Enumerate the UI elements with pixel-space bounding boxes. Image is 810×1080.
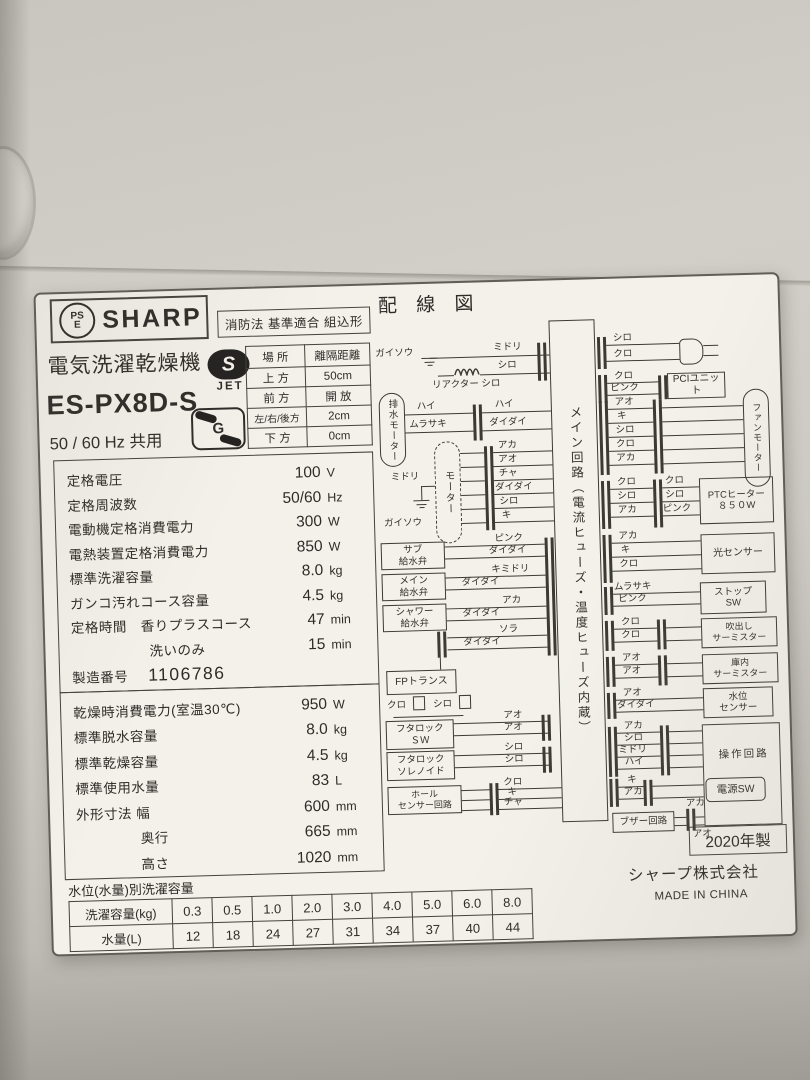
- spec-unit: kg: [323, 563, 365, 578]
- specs-block-1: 定格電圧100V 定格周波数50/60Hz 電動機定格消費電力300W 電熱装置…: [53, 451, 379, 693]
- motor-box: モーター: [434, 441, 463, 544]
- fp-stub: [413, 696, 425, 710]
- spec-name: 標準洗濯容量: [69, 566, 154, 588]
- spec-name: ガンコ汚れコース容量: [70, 589, 210, 613]
- spec-name: 定格時間 香りプラスコース: [71, 612, 253, 637]
- wire: [666, 639, 701, 641]
- main-valve-box: メイン 給水弁: [381, 572, 446, 601]
- left-edge-shadow: [0, 0, 30, 1080]
- capacity-value: 3.0: [332, 893, 373, 919]
- wire-label: ダイダイ: [462, 608, 500, 619]
- capacity-value: 0.5: [212, 896, 253, 922]
- wire-label: キ: [617, 411, 627, 421]
- wire-label: ダイダイ: [617, 700, 655, 711]
- spec-value: 4.5: [264, 747, 328, 767]
- wire-label: アオ: [693, 829, 712, 839]
- wire: [429, 354, 549, 358]
- wire: [669, 730, 702, 732]
- wire-label: クロ: [613, 349, 632, 359]
- wire: [454, 721, 550, 725]
- wire-label: シロ: [433, 699, 452, 709]
- reactor-coil-icon: [454, 365, 480, 376]
- spec-unit: kg: [328, 722, 370, 737]
- wire: [618, 768, 661, 770]
- wire-label: クロ: [617, 477, 636, 487]
- wire-label: アオ: [615, 397, 634, 407]
- amount-value: 31: [333, 918, 374, 944]
- water-amount-label: 水量(L): [70, 924, 174, 952]
- amount-value: 27: [293, 919, 334, 945]
- spec-unit: Hz: [321, 489, 363, 504]
- frequency: 50 / 60 Hz 共用: [49, 433, 162, 453]
- spec-unit: min: [325, 636, 367, 651]
- connector: [606, 657, 616, 687]
- wire-label: クロ: [621, 630, 640, 640]
- wire: [462, 522, 486, 524]
- clearance-distance: 50cm: [305, 365, 371, 387]
- g-letter: G: [212, 420, 224, 437]
- plug-prong: [703, 355, 718, 356]
- reactor-label: リアクター シロ: [432, 379, 501, 390]
- spec-unit: W: [327, 696, 369, 711]
- spec-unit: L: [329, 773, 371, 788]
- wire: [462, 799, 490, 801]
- wire-label: アカ: [686, 798, 705, 808]
- hall-sensor-box: ホール センサー回路: [387, 785, 462, 815]
- clearance-place: 前 方: [247, 387, 307, 409]
- g-mark-icon: G: [191, 407, 246, 450]
- spec-name: 標準乾燥容量: [74, 750, 159, 772]
- clearance-table: 場 所 離隔距離 上 方50cm 前 方開 放 左/右/後方2cm 下 方0cm: [245, 342, 373, 448]
- wire: [667, 675, 702, 677]
- wire-label: キ: [627, 775, 637, 785]
- bottom-shadow: [0, 950, 810, 1080]
- wire-label: アカ: [618, 505, 637, 515]
- wire-label: クロ: [614, 371, 633, 381]
- wire: [460, 466, 484, 468]
- clearance-place: 左/右/後方: [247, 407, 307, 429]
- wire: [393, 715, 463, 718]
- wire-label: ミドリ: [618, 745, 647, 755]
- wire-label: アカ: [498, 440, 517, 450]
- wire: [609, 464, 654, 466]
- plug-prong: [703, 345, 718, 346]
- wire: [670, 754, 703, 756]
- wire: [482, 428, 551, 431]
- connector: [686, 809, 696, 831]
- wire: [611, 516, 654, 518]
- wire: [461, 480, 485, 482]
- amount-value: 44: [492, 914, 533, 940]
- outlet-thermistor-box: 吹出し サーミスター: [701, 616, 778, 648]
- wire: [696, 824, 705, 825]
- clearance-place: 下 方: [248, 427, 308, 449]
- wire-label: アオ: [622, 653, 641, 663]
- wire-label: アオ: [503, 710, 522, 720]
- wire-label: ピンク: [610, 383, 639, 393]
- spec-name: 乾燥時消費電力(室温30℃): [73, 697, 241, 722]
- wire-label: クロ: [387, 701, 406, 711]
- wire-label: シロ: [505, 754, 524, 764]
- spec-value: 950: [263, 696, 327, 716]
- amount-value: 24: [253, 920, 294, 946]
- wire-label: アカ: [624, 721, 643, 731]
- wire-label: チャ: [499, 468, 518, 478]
- model-number: ES-PX8D-S: [46, 388, 198, 419]
- wire-label: ミドリ: [493, 342, 522, 352]
- spec-unit: W: [322, 538, 364, 553]
- wire: [462, 809, 490, 811]
- amount-value: 12: [173, 923, 214, 949]
- plug-icon: [679, 338, 704, 365]
- clearance-distance: 2cm: [306, 405, 372, 427]
- spec-value: 47: [260, 611, 324, 631]
- wire: [614, 641, 657, 643]
- power-sw-box: 電源SW: [705, 777, 766, 803]
- spec-value: 1020: [267, 849, 331, 869]
- amount-value: 18: [213, 921, 254, 947]
- connector: [657, 619, 667, 649]
- wire: [445, 556, 545, 560]
- ground-icon: [413, 500, 429, 510]
- wire: [405, 413, 473, 416]
- wire: [421, 486, 422, 500]
- ground-icon: [421, 358, 437, 368]
- spec-unit: kg: [328, 747, 370, 762]
- spec-value: 600: [266, 798, 330, 818]
- wire: [652, 784, 703, 786]
- wire-label: ピンク: [618, 594, 647, 604]
- wire-label: アカ: [502, 595, 521, 605]
- spec-name: 外形寸法 幅: [76, 802, 151, 824]
- spec-unit: mm: [331, 849, 373, 864]
- made-in: MADE IN CHINA: [654, 889, 748, 903]
- spec-value: 850: [258, 538, 322, 558]
- wire-label: アオ: [622, 666, 641, 676]
- fire-law-box: 消防法 基準適合 組込形: [217, 306, 371, 337]
- wire: [666, 626, 701, 628]
- spec-value: 8.0: [259, 562, 323, 582]
- clearance-row: 下 方0cm: [248, 425, 373, 448]
- wiring-title: 配 線 図: [378, 294, 481, 316]
- capacity-value: 4.0: [372, 892, 413, 918]
- connector: [597, 337, 607, 369]
- amount-value: 34: [373, 917, 414, 943]
- brand-name: SHARP: [102, 303, 203, 335]
- wire: [454, 733, 550, 737]
- connector: [537, 343, 547, 381]
- connector: [653, 399, 664, 473]
- connector: [660, 725, 670, 775]
- wire-label: アカ: [618, 531, 637, 541]
- connector: [541, 715, 551, 741]
- wire-label: キ: [502, 511, 512, 521]
- wire-label: シロ: [613, 333, 632, 343]
- wire: [615, 677, 658, 679]
- connector: [604, 587, 614, 615]
- connector: [605, 621, 615, 651]
- wire-label: クロ: [665, 476, 684, 486]
- capacity-value: 0.3: [172, 898, 213, 924]
- wire-label: アカ: [623, 787, 642, 797]
- wire-label: ダイダイ: [489, 545, 527, 556]
- pse-bottom: E: [74, 321, 81, 330]
- wire-label: ピンク: [494, 533, 523, 543]
- capacity-value: 6.0: [452, 890, 493, 916]
- wire-label: ダイダイ: [462, 577, 500, 588]
- wire-label: シロ: [617, 491, 636, 501]
- spec-value: 300: [258, 513, 322, 533]
- fan-motor-box: ファンモーター: [742, 388, 771, 487]
- wire-label: ハイ: [495, 399, 514, 409]
- amount-value: 40: [453, 915, 494, 941]
- clearance-distance: 0cm: [307, 425, 373, 447]
- capacity-value: 5.0: [412, 891, 453, 917]
- wire-label: シロ: [624, 733, 643, 743]
- wire-label: ムラサキ: [614, 582, 652, 593]
- ptc-heater-box: PTCヒーター ８５０W: [699, 476, 774, 524]
- clearance-place: 上 方: [246, 367, 306, 389]
- wire-label: シロ: [615, 425, 634, 435]
- connector: [437, 631, 447, 657]
- sub-valve-box: サブ 給水弁: [381, 541, 446, 570]
- drain-motor-box: 排水モーター: [378, 393, 406, 468]
- wire: [462, 508, 486, 510]
- fp-trans-box: FPトランス: [386, 669, 457, 695]
- wire-label: クロ: [621, 617, 640, 627]
- connector: [609, 779, 619, 807]
- water-table: 洗濯容量(kg) 0.3 0.5 1.0 2.0 3.0 4.0 5.0 6.0…: [68, 888, 533, 952]
- wire: [438, 375, 454, 376]
- connector: [607, 693, 617, 719]
- wire-label: アオ: [623, 688, 642, 698]
- spec-value: 665: [266, 823, 330, 843]
- wire: [405, 431, 473, 434]
- fp-stub: [459, 695, 471, 709]
- spec-name: 奥行: [76, 827, 169, 850]
- specs-block-2: 乾燥時消費電力(室温30℃)950W 標準脱水容量8.0kg 標準乾燥容量4.5…: [60, 683, 385, 880]
- pse-sharp-box: PS E SHARP: [50, 295, 209, 343]
- connector: [473, 404, 483, 440]
- wire-label: キ: [621, 545, 631, 555]
- clearance-distance: 開 放: [306, 385, 372, 407]
- wire: [669, 742, 702, 744]
- operation-circuit-box: [702, 722, 783, 826]
- spec-name: 標準脱水容量: [74, 725, 159, 747]
- wire-label: ダイダイ: [489, 417, 527, 428]
- wire-label: アカ: [616, 453, 635, 463]
- serial-number: 1106786: [148, 662, 226, 685]
- capacity-value: 8.0: [492, 889, 533, 915]
- wire: [662, 405, 743, 408]
- wire-label: シロ: [665, 490, 684, 500]
- clearance-col-place: 場 所: [246, 345, 306, 369]
- wire: [667, 662, 702, 664]
- wire: [608, 408, 653, 410]
- connector: [658, 655, 668, 685]
- clearance-col-distance: 離隔距離: [305, 343, 371, 367]
- wire-label: クロ: [619, 559, 638, 569]
- wire-label: ソラ: [499, 624, 518, 634]
- spec-unit: kg: [324, 587, 366, 602]
- lid-lock-solenoid-box: フタロック ソレノイド: [386, 750, 455, 781]
- wire-label: シロ: [499, 496, 518, 506]
- wire: [662, 419, 743, 422]
- wire: [619, 798, 644, 800]
- pse-mark-icon: PS E: [59, 302, 96, 339]
- ground-label: ガイソウ: [384, 518, 422, 529]
- water-capacity-label: 洗濯容量(kg): [69, 899, 173, 927]
- amount-value: 37: [413, 916, 454, 942]
- water-level-sensor-box: 水位 センサー: [703, 686, 774, 718]
- wire-label: シロ: [498, 360, 517, 370]
- spec-name: 高さ: [77, 852, 170, 875]
- wire: [663, 433, 744, 436]
- wire: [695, 816, 704, 817]
- wire: [482, 410, 551, 413]
- wire-label: シロ: [504, 742, 523, 752]
- light-sensor-box: 光センサー: [700, 532, 775, 574]
- wire-label: アオ: [504, 722, 523, 732]
- wire-label: ムラサキ: [409, 419, 447, 430]
- wire-label: ダイダイ: [463, 637, 501, 648]
- chamber-thermistor-box: 庫内 サーミスター: [702, 652, 779, 684]
- spec-name: 定格周波数: [67, 493, 138, 515]
- serial-label: 製造番号: [72, 665, 129, 687]
- water-table-title: 水位(水量)別洗濯容量: [68, 882, 194, 899]
- spec-unit: W: [322, 514, 364, 529]
- wire: [421, 486, 435, 487]
- spec-label: PS E SHARP 消防法 基準適合 組込形 電気洗濯乾燥機 S JET ES…: [33, 272, 797, 957]
- wire: [460, 452, 484, 454]
- wire: [461, 494, 485, 496]
- wire-label: チャ: [504, 797, 523, 807]
- wire: [670, 766, 703, 768]
- wire: [663, 447, 744, 450]
- connector: [484, 446, 495, 530]
- wire-label: ハイ: [417, 402, 436, 412]
- spec-unit: mm: [330, 798, 372, 813]
- ground-label: ガイソウ: [375, 348, 413, 359]
- spec-name: 電動機定格消費電力: [68, 516, 195, 540]
- capacity-value: 1.0: [252, 895, 293, 921]
- wiring-diagram: 配 線 図 メイン回路（電流ヒューズ・温度ヒューズ内蔵） ガイソウ ミドリ シロ…: [371, 278, 791, 875]
- operation-circuit-label: 操作回路: [718, 749, 768, 761]
- jet-s: S: [207, 349, 250, 380]
- connector: [608, 727, 618, 777]
- wire: [675, 825, 687, 826]
- wire-label: ハイ: [625, 757, 644, 767]
- wire-label: ミドリ: [391, 472, 420, 482]
- connector: [542, 747, 552, 773]
- spec-value: 83: [265, 772, 329, 792]
- spec-value: 8.0: [264, 721, 328, 741]
- wire: [462, 789, 490, 791]
- capacity-value: 2.0: [292, 894, 333, 920]
- wire: [663, 461, 744, 464]
- wire: [440, 658, 441, 670]
- wire-label: キミドリ: [491, 564, 529, 575]
- spec-name: 洗いのみ: [71, 638, 206, 662]
- spec-unit: mm: [330, 824, 372, 839]
- wire: [455, 753, 551, 757]
- spec-value: 50/60: [257, 489, 321, 509]
- wire-label: アオ: [498, 454, 517, 464]
- spec-name: 標準使用水量: [75, 776, 160, 798]
- spec-unit: V: [320, 465, 362, 480]
- pci-unit-box: PCIユニット: [667, 372, 726, 400]
- wire: [663, 514, 700, 516]
- connector: [643, 780, 653, 806]
- spec-name: 電熱装置定格消費電力: [68, 540, 209, 564]
- product-type: 電気洗濯乾燥機: [47, 352, 202, 377]
- spec-name: 定格電圧: [66, 469, 123, 491]
- connector: [599, 401, 610, 475]
- connector: [598, 375, 608, 403]
- main-circuit-label: メイン回路（電流ヒューズ・温度ヒューズ内蔵）: [566, 406, 590, 736]
- shower-valve-box: シャワー 給水弁: [382, 603, 447, 632]
- wire-label: ピンク: [663, 504, 692, 514]
- wire: [455, 765, 551, 769]
- wire: [674, 817, 686, 818]
- spec-value: 100: [256, 464, 320, 484]
- wire-label: クロ: [616, 439, 635, 449]
- stop-sw-box: ストップ SW: [700, 581, 767, 615]
- lid-lock-sw-box: フタロック ＳＷ: [386, 719, 455, 750]
- spec-value: 4.5: [260, 587, 324, 607]
- spec-value: 15: [261, 636, 325, 656]
- spec-unit: min: [325, 612, 367, 627]
- buzzer-box: ブザー回路: [612, 811, 675, 833]
- connector: [489, 783, 499, 815]
- wire-label: ダイダイ: [495, 482, 533, 493]
